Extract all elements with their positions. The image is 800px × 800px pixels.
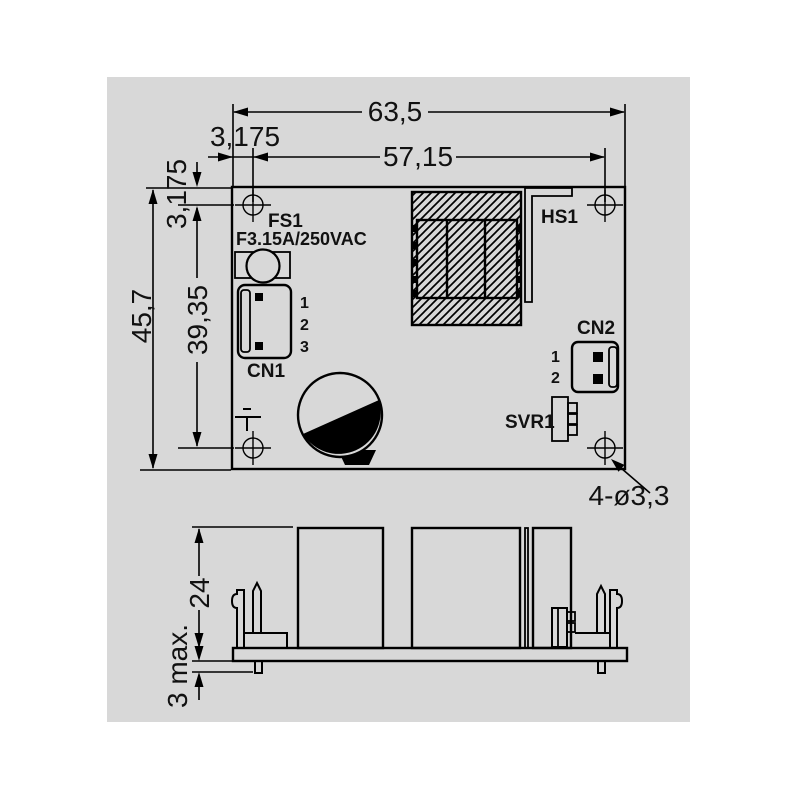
- transformer: [411, 192, 522, 325]
- dim-hole-pitch-v: 39,35: [182, 285, 213, 355]
- dim-pin-protrusion: 3 max.: [162, 624, 193, 708]
- cn1-label: CN1: [247, 361, 285, 382]
- dim-edge-offset-h: 3,175: [210, 121, 280, 152]
- cn2-pin-1: 1: [551, 349, 560, 366]
- dim-total-height: 45,7: [126, 289, 157, 344]
- cn2-label: CN2: [577, 318, 615, 339]
- fuse-rating-label: F3.15A/250VAC: [236, 229, 367, 249]
- hole-size-text: 4-ø3,3: [589, 480, 670, 511]
- dim-hole-pitch-h: 57,15: [383, 141, 453, 172]
- heatsink-label: HS1: [541, 207, 578, 228]
- mechanical-drawing: HS1 FS1 F3.15A/250VAC 1 2 3 CN1: [0, 0, 800, 800]
- cn1-pin-3: 3: [300, 339, 309, 356]
- cn1-pin-2: 2: [300, 317, 309, 334]
- cn2-pin-2: 2: [551, 370, 560, 387]
- page: HS1 FS1 F3.15A/250VAC 1 2 3 CN1: [0, 0, 800, 800]
- dim-edge-offset-v: 3,175: [161, 159, 192, 229]
- svr1-label: SVR1: [505, 412, 555, 433]
- dim-total-width: 63,5: [368, 96, 423, 127]
- dim-component-height: 24: [184, 577, 215, 608]
- cn1-pin-1: 1: [300, 295, 309, 312]
